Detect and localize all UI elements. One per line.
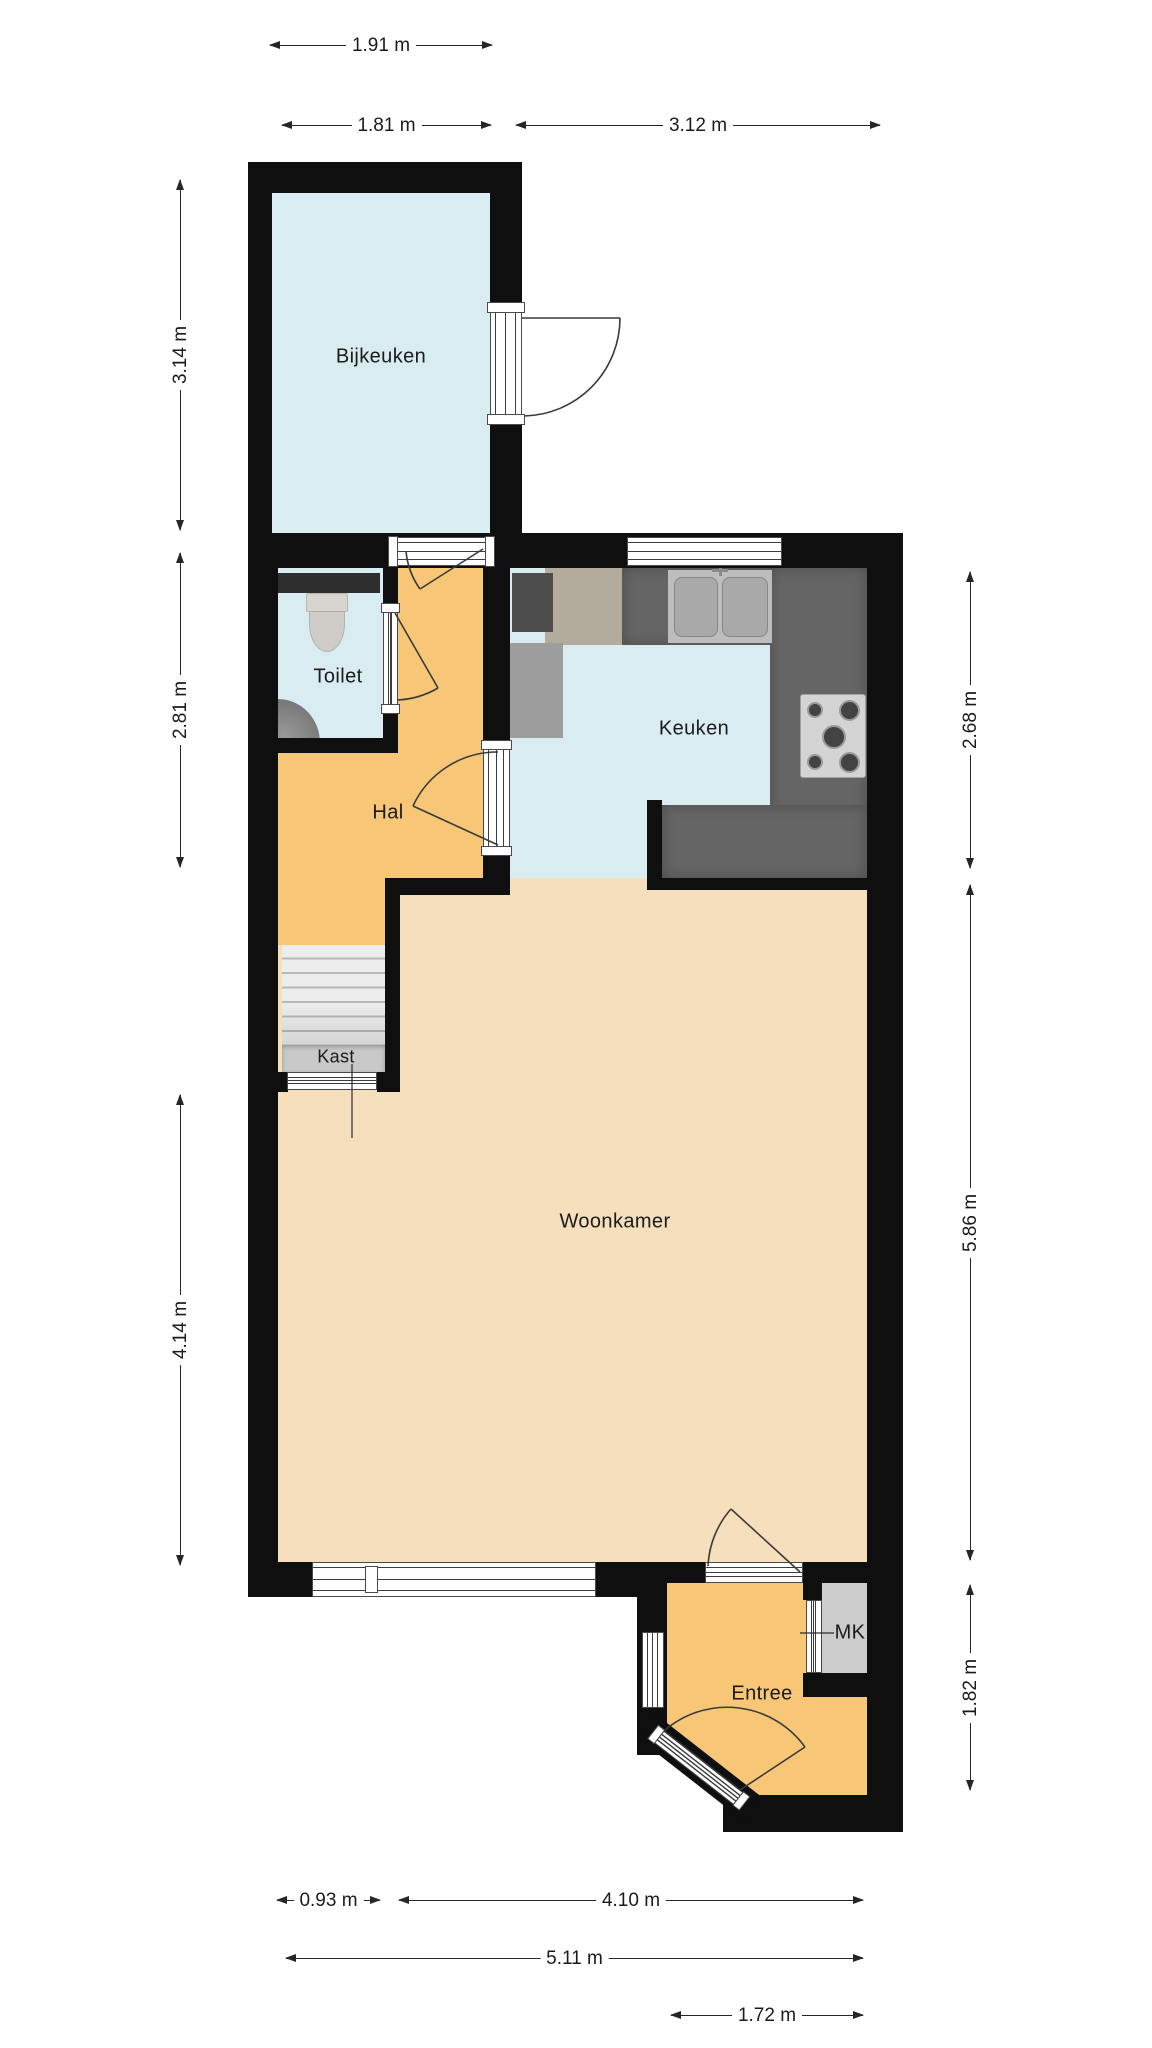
sink-basin-left xyxy=(674,577,718,637)
toilet-shelf xyxy=(278,573,380,593)
window-entree-side xyxy=(642,1632,664,1708)
wall xyxy=(248,162,522,193)
door-bijkeuken-exterior xyxy=(490,312,522,415)
wall xyxy=(248,557,278,1597)
dimension-top-3: 3.12 m xyxy=(516,125,880,126)
wall xyxy=(803,1583,822,1600)
dimension-bottom-1: 0.93 m xyxy=(277,1900,380,1901)
sink-basin-right xyxy=(722,577,768,637)
wall xyxy=(248,738,398,753)
counter-bottom xyxy=(662,805,867,878)
wall xyxy=(385,878,510,895)
door-jamb xyxy=(487,414,525,425)
floor-stair-approach xyxy=(278,878,385,945)
dimension-top-2: 1.81 m xyxy=(282,125,491,126)
window-keuken xyxy=(627,537,782,566)
dimension-bottom-2: 4.10 m xyxy=(399,1900,863,1901)
door-woonkamer-entree xyxy=(705,1562,803,1583)
door-jamb xyxy=(381,603,400,613)
window-mullion xyxy=(365,1566,378,1593)
kitchen-appliance-dark xyxy=(512,573,553,632)
room-label-hal: Hal xyxy=(372,802,403,825)
dimension-bottom-4: 1.72 m xyxy=(671,2015,863,2016)
corner-sink-faucet-icon xyxy=(285,727,294,736)
room-label-keuken: Keuken xyxy=(659,718,729,741)
wall xyxy=(377,1072,400,1092)
kitchen-appliance-gray xyxy=(510,643,563,738)
door-hal-woonkamer xyxy=(483,749,510,847)
wall xyxy=(723,1795,903,1832)
wall xyxy=(647,878,867,890)
room-label-woonkamer: Woonkamer xyxy=(559,1211,670,1234)
door-jamb xyxy=(487,302,525,313)
door-jamb xyxy=(481,740,512,750)
wall xyxy=(867,533,903,1832)
toilet-cistern xyxy=(306,593,348,612)
dimension-left-1: 3.14 m xyxy=(180,180,181,530)
floor-plan: Bijkeuken Toilet Hal Keuken Woonkamer Ka… xyxy=(0,0,1152,2048)
door-jamb xyxy=(388,536,398,567)
room-label-entree: Entree xyxy=(731,1683,792,1706)
stove xyxy=(800,694,866,778)
room-label-toilet: Toilet xyxy=(313,666,362,689)
door-kast xyxy=(287,1072,377,1090)
dimension-bottom-3: 5.11 m xyxy=(286,1958,863,1959)
door-jamb xyxy=(481,846,512,856)
door-jamb xyxy=(485,536,495,567)
swing-bijkeuken-exterior xyxy=(524,318,620,416)
kitchen-cabinet xyxy=(545,568,622,645)
dimension-right-2: 5.86 m xyxy=(970,885,971,1560)
dimension-left-3: 4.14 m xyxy=(180,1095,181,1565)
wall xyxy=(647,800,662,890)
door-meter-cupboard xyxy=(806,1600,822,1673)
dimension-left-2: 2.81 m xyxy=(180,553,181,867)
wall xyxy=(385,878,400,1092)
wall xyxy=(803,1673,868,1697)
room-label-bijkeuken: Bijkeuken xyxy=(336,346,426,369)
dimension-top-1: 1.91 m xyxy=(270,45,492,46)
dimension-right-1: 2.68 m xyxy=(970,572,971,868)
door-jamb xyxy=(381,704,400,714)
door-bijkeuken-hal xyxy=(395,537,488,566)
door-toilet xyxy=(383,612,398,705)
dimension-right-3: 1.82 m xyxy=(970,1585,971,1790)
staircase xyxy=(282,945,385,1045)
floor-entree-upper xyxy=(667,1583,812,1677)
floor-hal-upper xyxy=(398,545,483,753)
room-label-mk: MK xyxy=(835,1622,866,1645)
window-woonkamer xyxy=(312,1562,596,1597)
room-label-kast: Kast xyxy=(317,1047,355,1068)
wall xyxy=(248,162,272,562)
